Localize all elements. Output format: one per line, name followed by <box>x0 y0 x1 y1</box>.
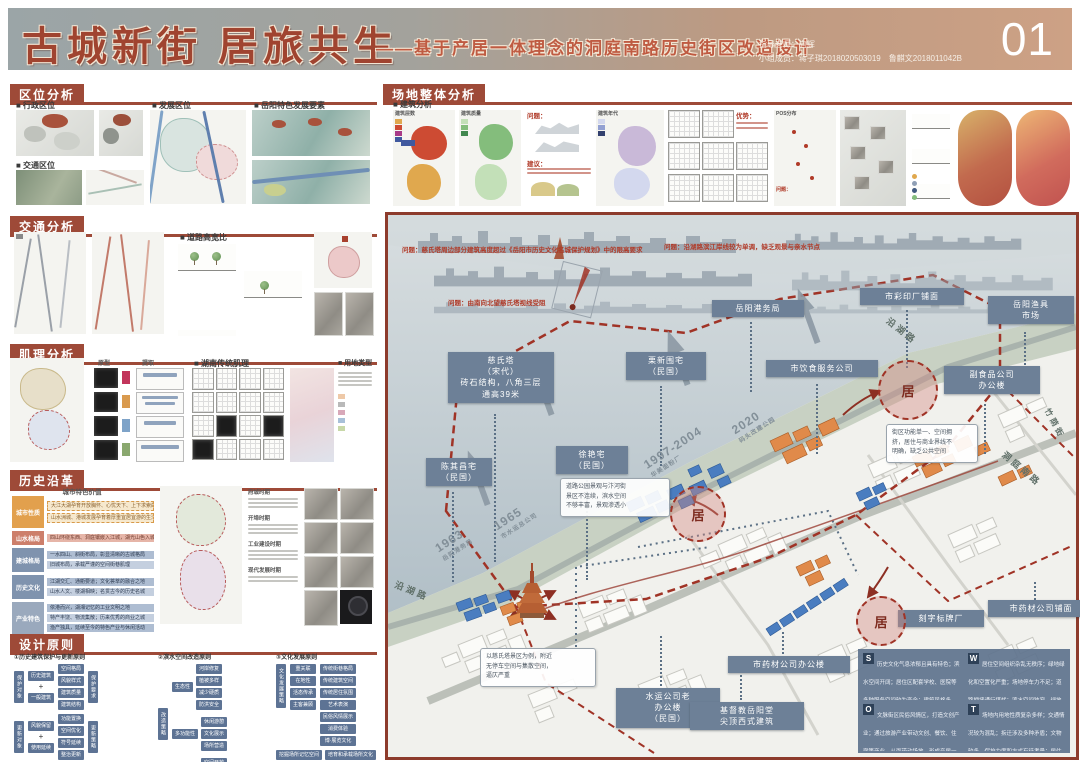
problem-note-3: 问题：沿湖路滨江岸线较为单调，缺乏观景与亲水节点 <box>664 241 820 251</box>
landuse-notes <box>338 370 372 434</box>
problem-note-2: 问题：由南向北望慈氏塔视线受阻 <box>448 297 546 307</box>
flow-node: 建筑质量 <box>58 688 84 698</box>
flow-node: 整治更新 <box>58 750 84 760</box>
flow-node: 场所营造 <box>201 741 227 751</box>
flow-node: 空间优化 <box>58 726 84 736</box>
principle-chart-3: ③文化发展原则 文化发展策略 重关联在地性活态传承主客兼顾 传统街巷格局传统建筑… <box>276 652 374 762</box>
swot-o: O文脉街区民俗风情区，打造文创产业；通过旅游产业带动文创、餐饮、住宿等商业，从而… <box>860 702 963 751</box>
flow-node: 传统建筑空间 <box>320 676 356 686</box>
label-kezi-factory: 刻字标牌厂 <box>898 610 984 627</box>
divider <box>84 102 377 105</box>
history-row: 产业特色 依港而兴，湖湘记忆的工业文明之地特产丰饶、物流集散；历来优秀的商业之城… <box>12 602 154 634</box>
label-cishita: 慈氏塔 （宋代） 砖石结构，八角三层 通高39米 <box>448 352 554 403</box>
poster-subtitle: ——基于产居一体理念的洞庭南路历史街区改造设计 <box>376 34 813 59</box>
swot-s: S历史文化气息浓郁且具有特色；滨水空间开阔；居住区配套学校、医院等多种服务空间较… <box>860 651 963 700</box>
flow-node: 防洪安全 <box>196 700 222 710</box>
history-notes: 府城时期 开埠时期 工业建设时期 现代发展时期 <box>248 488 298 584</box>
residence-circle-3: 居 <box>856 596 906 646</box>
flow-node: 文化展示 <box>201 729 227 739</box>
traffic-map-2 <box>92 232 164 334</box>
flow-node: 功能置换 <box>58 714 84 724</box>
note-function: 街区功能单一、空间拥 挤，居住与商业界线不 明确，缺乏公共空间 <box>886 424 978 463</box>
flow-node: 传统居住氛围 <box>320 688 356 698</box>
label-landuse: ■ 用地类型 <box>338 358 372 368</box>
principle-chart-2: ②滨水空间改造原则 改造策略 生态性河岸修复植被多样减少硬质防洪安全 多功能性休… <box>158 652 270 762</box>
label-road-ratio: ■ 道路高宽比 <box>180 232 227 243</box>
history-row: 建城格局 一水四山、斜街布局，彰显清晰的古城格局旧城布局，承载严谨的空间街巷肌理 <box>12 548 154 572</box>
problem-advice-block: 问题： 建议： <box>527 110 591 206</box>
label-yaocai-shop: 市药材公司铺面 <box>988 600 1080 617</box>
flow-node: 活态传承 <box>290 688 316 698</box>
analysis-map-1 <box>958 110 1012 206</box>
map-building-floors: 建筑层数 <box>393 110 455 206</box>
map-yueyang-region <box>99 110 143 156</box>
label-yinshi-company: 市饮食服务公司 <box>766 360 878 377</box>
flow-node: 植被多样 <box>196 676 222 686</box>
flow-node: 空间格局 <box>58 664 84 674</box>
flow-node: 培育和承载场所文化 <box>325 750 376 760</box>
aerial-photo-1 <box>16 170 82 205</box>
street-photo-2 <box>345 292 374 336</box>
swot-w: W居住空间组织杂乱无秩序；绿地绿化和空置化严重；场地停车力不足；道路拥堵通行堪忧… <box>965 651 1068 700</box>
label-yuanxing: 原型 <box>98 358 110 367</box>
header-band: 古城新街 居旅共生 ——基于产居一体理念的洞庭南路历史街区改造设计 01 指导老… <box>8 8 1072 70</box>
history-map <box>160 486 242 624</box>
history-table: 城市性质 大江大湖孕育开放胸怀、心忧天下、上下求索的精神内涵山水洲城、港城发展孕… <box>12 496 154 637</box>
landuse-map <box>290 368 334 462</box>
flow-node: 保护对象 <box>14 671 24 703</box>
map-building-age: 建筑年代 <box>596 110 664 206</box>
tradition-sketch-grid <box>192 368 284 460</box>
flow-node: 减少硬质 <box>196 688 222 698</box>
road-map-small <box>86 170 144 205</box>
traffic-map-1 <box>14 232 86 334</box>
poster-page: 古城新街 居旅共生 ——基于产居一体理念的洞庭南路历史街区改造设计 01 指导老… <box>0 0 1080 762</box>
flow-node: 更新对象 <box>14 721 24 753</box>
flow-node: 主客兼顾 <box>290 700 316 710</box>
label-tiqu: 提取 <box>142 358 154 367</box>
page-number: 01 <box>1001 12 1054 66</box>
flow-node: 在地性 <box>290 676 316 686</box>
map-features-2 <box>252 160 370 204</box>
flow-node: 保护要求 <box>88 671 98 703</box>
label-gangwuju: 岳阳港务局 <box>712 300 804 317</box>
legend-quality <box>461 118 468 137</box>
legend-age <box>598 118 605 137</box>
highlight-region <box>42 114 68 128</box>
advisor-line: 指导老师：向辉 <box>759 38 962 52</box>
flow-node: 符号延续 <box>58 738 84 748</box>
section-diagrams <box>910 110 954 206</box>
flow-node: 空间开放 <box>201 758 227 762</box>
flow-node: 文化发展策略 <box>276 664 286 708</box>
map-development <box>150 110 246 204</box>
label-lixinweizhai: 栗新围宅 （民国） <box>626 352 706 380</box>
note-waterfront: 道路公园景观与汴河街 景区不连续，滨水空间 不够丰富，景观渗透小 <box>560 478 670 517</box>
flow-node: 挖掘场所记忆空间 <box>276 750 322 760</box>
map-building-quality: 建筑质量 <box>459 110 521 206</box>
label-building-analysis: ■ 建筑分析 <box>393 99 432 110</box>
swot-t: T场地内用地性质复杂多样；交通情况较为混乱；拆迁涉及多种矛盾；文物较多，保护力度… <box>965 702 1068 751</box>
label-church: 基督教岳阳堂 尖顶西式建筑 <box>690 702 804 730</box>
history-row: 历史文化 江湖交汇、通衢要道；文化荟萃的融合之地山水人文、楼湖相映；名贯古今的历… <box>12 575 154 599</box>
map-hunan-province <box>16 110 94 156</box>
photo-collage-map <box>840 110 906 206</box>
building-sketches: 优势： <box>668 110 770 206</box>
history-table-title: 城市特色价值 <box>12 486 152 496</box>
locomotive-photo <box>340 590 372 624</box>
flow-node: 传统街巷格局 <box>320 664 356 674</box>
label-yaocai-office: 市药材公司办公楼 <box>728 656 850 673</box>
flow-node: 改造策略 <box>158 708 168 740</box>
credits: 指导老师：向辉 小组成员：蒋子琪2018020503019 鲁麒文2018011… <box>759 38 962 65</box>
flow-node: 民俗风情展示 <box>320 712 356 722</box>
district-map-small <box>314 232 372 288</box>
street-sections <box>178 244 306 336</box>
flow-node: 风貌样式 <box>58 676 84 686</box>
note-pagoda-area: 以慈氏塔景区为例，附近 无停车空间与集散空间， 逼仄严重 <box>480 648 596 687</box>
flow-node: 重关联 <box>290 664 316 674</box>
principle-chart-1: ①历史建筑保护与更新原则 保护对象 历史建筑+一般建筑 空间格局风貌样式建筑质量… <box>14 652 148 762</box>
label-yuju-market: 岳阳渔具 市场 <box>988 296 1074 324</box>
flow-node: 休闲游憩 <box>201 717 227 727</box>
map-features-1 <box>252 110 370 156</box>
analysis-map-2 <box>1016 110 1070 206</box>
section-header-site: 场地整体分析 <box>383 84 1072 105</box>
team-line: 小组成员：蒋子琪2018020503019 鲁麒文2018011042B <box>759 52 962 66</box>
flow-node: 艺术表演 <box>320 700 356 710</box>
history-row: 山水格局 四山环绕东西、洞庭镶嵌入江城，湖光山色入城郭 <box>12 531 154 545</box>
label-caiyinchang: 市彩印厂铺面 <box>860 288 964 305</box>
swot-panel: S历史文化气息浓郁且具有特色；滨水空间开阔；居住区配套学校、医院等多种服务空间较… <box>858 649 1070 753</box>
flow-node: 消费体验 <box>320 724 356 734</box>
flow-node: 博·展览文化 <box>320 736 356 746</box>
residence-circle-2: 居 <box>670 486 726 542</box>
problem-note-1: 问题：慈氏塔周边部分建筑高度超过《岳阳市历史文化名城保护规划》中的限高要求 <box>402 244 643 254</box>
poster-title: 古城新街 居旅共生 <box>22 14 398 72</box>
label-fushipin-office: 副食品公司 办公楼 <box>944 366 1040 394</box>
residence-circle-1: 居 <box>878 360 938 420</box>
flow-node: 更新策略 <box>88 721 98 753</box>
label-xuyanzhai: 徐艳宅 （民国） <box>556 446 628 474</box>
street-photo-1 <box>314 292 343 336</box>
texture-map <box>10 358 84 462</box>
flow-node: 建筑结构 <box>58 700 84 710</box>
flow-node: 河岸修复 <box>196 664 222 674</box>
label-chenqichang: 陈其昌宅 （民国） <box>426 458 492 486</box>
history-row: 城市性质 大江大湖孕育开放胸怀、心忧天下、上下求索的精神内涵山水洲城、港城发展孕… <box>12 496 154 528</box>
map-pos: POS分布 问题： <box>774 110 836 206</box>
